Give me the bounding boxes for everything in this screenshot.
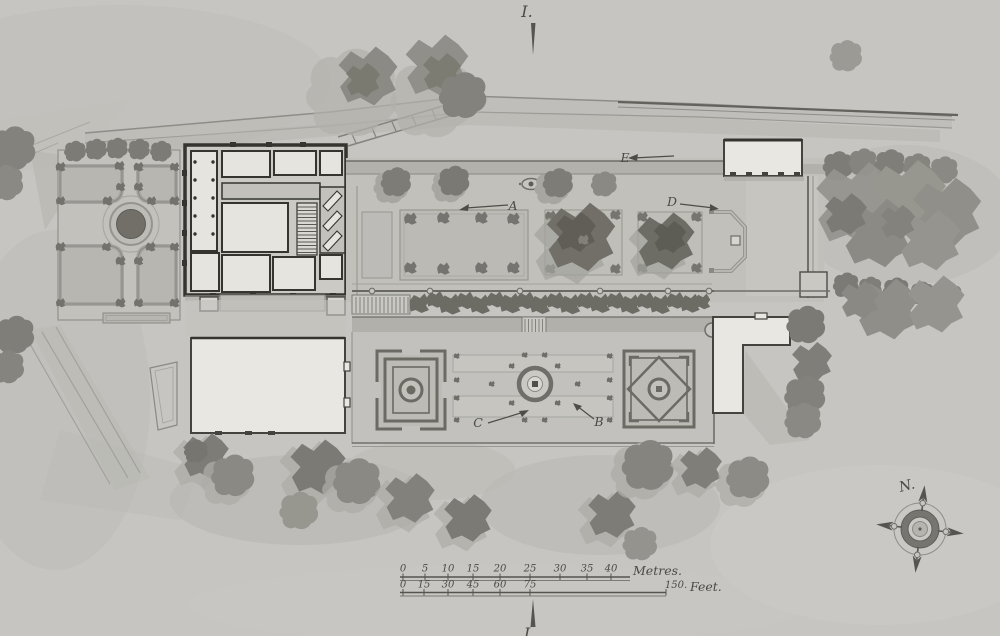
main-villa-building <box>182 142 346 336</box>
parterre-lower-bed <box>103 313 170 323</box>
metres-tick-2: 10 <box>442 564 455 575</box>
feet-tick-4: 60 <box>494 580 507 591</box>
metres-tick-7: 35 <box>581 564 594 575</box>
tree-panel <box>400 210 528 280</box>
staircase <box>297 203 317 255</box>
feet-tick-150: 150. <box>665 580 687 591</box>
metres-tick-4: 20 <box>493 564 507 575</box>
terrace-stair-centre <box>522 317 546 333</box>
outbuilding-white-top <box>724 140 804 181</box>
garden-fountain <box>519 368 551 400</box>
metres-tick-1: 5 <box>422 564 428 575</box>
wall-niche <box>705 323 712 337</box>
ramp-wing <box>320 187 345 253</box>
gallery-hall <box>191 151 217 251</box>
metres-tick-6: 30 <box>554 564 567 575</box>
metres-tick-0: 0 <box>400 564 407 575</box>
parterre-fountain <box>110 203 152 245</box>
label-a: A <box>507 198 517 213</box>
metres-tick-8: 40 <box>604 564 618 575</box>
lower-terrace-garden <box>352 318 714 447</box>
knot-parterre-left <box>374 348 449 433</box>
feet-tick-2: 30 <box>442 580 455 591</box>
feet-tick-0: 0 <box>400 580 407 591</box>
feet-tick-3: 45 <box>466 580 480 591</box>
garden-plan-drawing: A D E C B I. I 0 5 10 15 20 25 3 <box>0 0 1000 636</box>
metres-unit-label: Metres. <box>632 563 682 578</box>
feet-tick-1: 15 <box>418 580 431 591</box>
garden-plan-page: A D E C B I. I 0 5 10 15 20 25 3 <box>0 0 1000 636</box>
label-b: B <box>593 414 603 429</box>
bosquet-squares <box>534 203 702 284</box>
metres-tick-5: 25 <box>523 564 537 575</box>
corridor <box>222 183 320 199</box>
label-e: E <box>619 150 629 165</box>
label-d: D <box>666 194 677 209</box>
feet-unit-label: Feet. <box>689 579 722 594</box>
metres-tick-3: 15 <box>467 564 480 575</box>
feet-tick-5: 75 <box>524 580 537 591</box>
knot-parterre-right <box>624 351 694 427</box>
section-letter-top: I. <box>520 2 532 21</box>
side-grass-plot <box>362 212 392 278</box>
terrace-stair-left <box>352 295 410 314</box>
section-letter-bottom: I <box>523 624 531 636</box>
label-c: C <box>473 415 483 430</box>
